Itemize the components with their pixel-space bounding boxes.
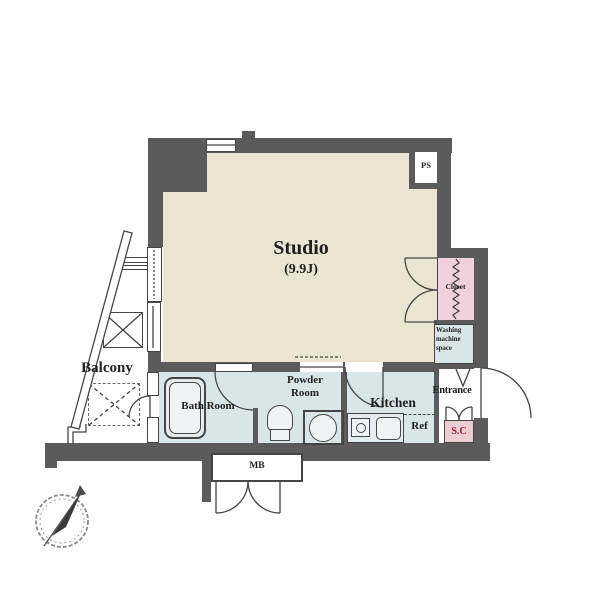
wall xyxy=(253,408,258,443)
wall xyxy=(202,453,211,502)
wall xyxy=(474,258,488,368)
label-refrigerator: Ref xyxy=(404,420,435,432)
wash-basin xyxy=(309,414,337,442)
balcony-tie-bar xyxy=(116,265,148,270)
balcony-window-2 xyxy=(147,302,161,352)
room-label-powder-2: Room xyxy=(262,387,348,399)
door-gap-kitchen xyxy=(345,362,383,372)
bath-door-leaf xyxy=(215,363,253,372)
equipment-dashed-box xyxy=(88,383,140,426)
room-label-kitchen: Kitchen xyxy=(352,396,434,411)
railing-hook xyxy=(68,420,86,444)
wall xyxy=(437,248,488,258)
toilet-tank xyxy=(270,429,290,441)
wall xyxy=(434,364,474,369)
room-label-entrance: Entrance xyxy=(423,385,481,397)
room-label-balcony: Balcony xyxy=(70,360,144,377)
label-washing-2: machine xyxy=(436,336,473,343)
room-label-bath: Bath Room xyxy=(160,400,256,412)
compass-icon xyxy=(36,485,88,547)
room-label-powder-1: Powder xyxy=(262,374,348,386)
kitchen-sink xyxy=(376,417,401,440)
stove-burner xyxy=(356,423,366,433)
wall xyxy=(437,153,451,248)
wall xyxy=(148,192,163,247)
label-meter-box: MB xyxy=(211,461,303,471)
mb-door-arc xyxy=(216,482,248,513)
label-washing-1: Washing xyxy=(436,327,473,334)
entrance-door-arc xyxy=(481,368,531,418)
balcony-sliding-window xyxy=(147,247,162,302)
room-label-closet: Closet xyxy=(437,283,474,291)
wall xyxy=(45,443,57,468)
refrigerator-space-line xyxy=(404,414,435,415)
label-washing-3: space xyxy=(436,345,473,352)
label-pipe-space: PS xyxy=(415,161,437,170)
label-shoe-closet: S.C xyxy=(444,426,474,437)
wall xyxy=(409,183,437,189)
wall xyxy=(242,131,255,140)
sliding-door-gap-powder xyxy=(300,362,343,372)
room-label-studio: Studio xyxy=(240,237,362,259)
ac-unit-box xyxy=(103,312,143,348)
wall xyxy=(148,138,207,192)
balcony-tie-bar xyxy=(116,257,148,263)
room-size-studio: (9.9J) xyxy=(240,262,362,277)
mb-door-arc xyxy=(248,482,280,513)
toilet-bowl xyxy=(267,405,293,432)
floor-plan: Studio (9.9J) Balcony Bath Room Powder R… xyxy=(0,0,600,602)
bath-wall-panel-upper xyxy=(147,372,159,396)
wall xyxy=(474,418,488,461)
window-top xyxy=(206,139,236,152)
wall xyxy=(150,362,437,372)
bath-wall-panel-lower xyxy=(147,417,159,443)
